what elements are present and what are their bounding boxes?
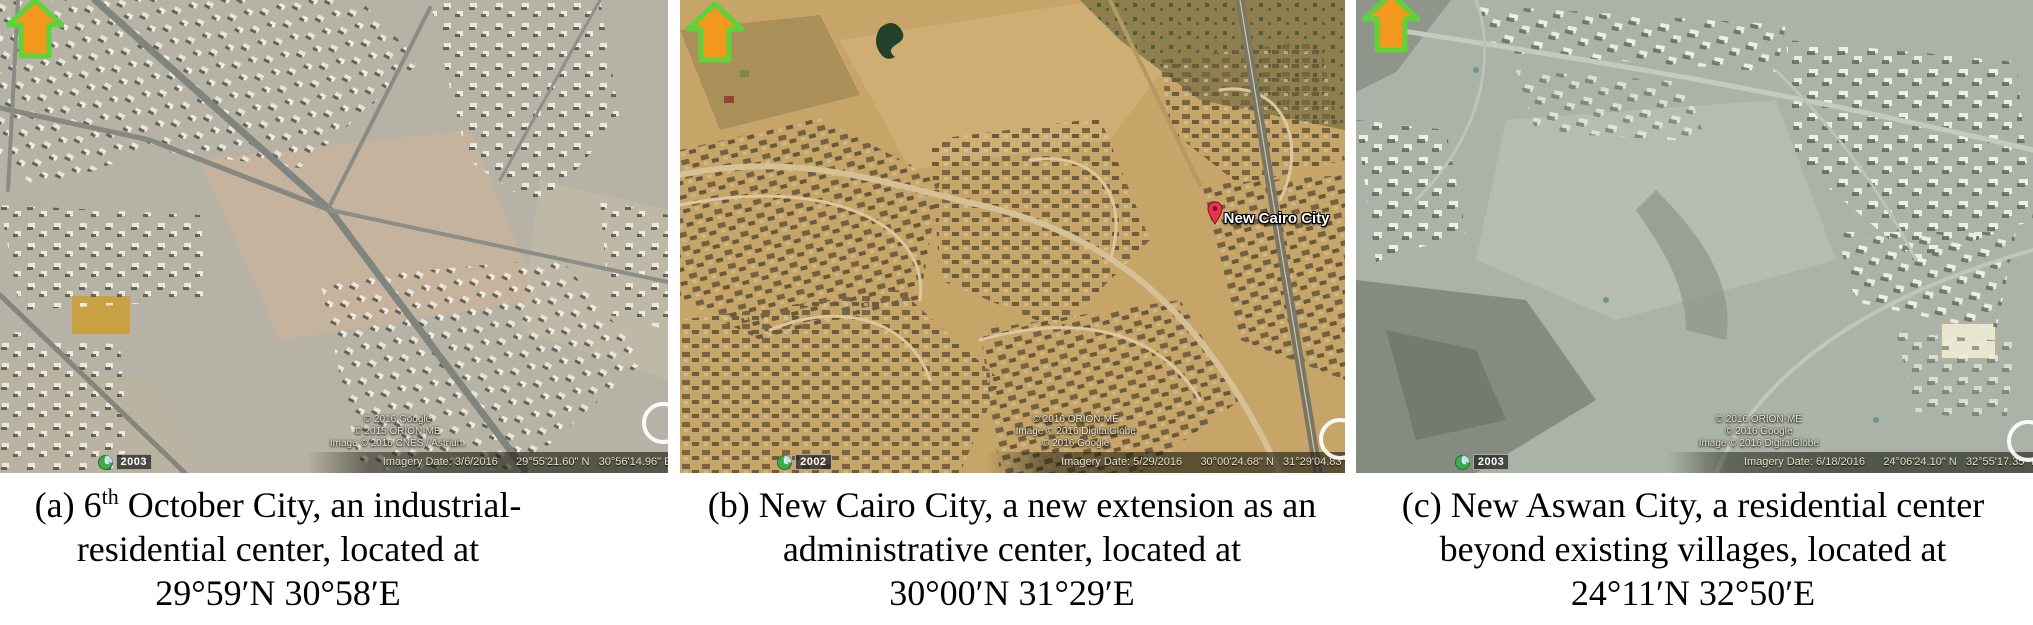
credit-line: © 2016 ORION-ME: [1699, 414, 1819, 426]
placemark-new-cairo-city: New Cairo City: [1207, 201, 1330, 227]
credit-line: © 2015 ORION-ME: [330, 426, 465, 438]
map-pin-icon: [1207, 201, 1223, 225]
credit-line: © 2016 Google: [330, 414, 465, 426]
year-label: 2003: [116, 454, 152, 470]
caption-a-coordinates: 29°59′N 30°58′E: [0, 571, 556, 615]
satellite-panel-october-city: © 2016 Google © 2015 ORION-ME Image © 20…: [0, 0, 668, 473]
status-text: Imagery Date: 3/6/2016 29°55'21.60" N 30…: [383, 456, 668, 468]
credit-line: © 2016 Google: [1016, 438, 1136, 450]
north-arrow-icon: [6, 0, 64, 59]
ordinal-superscript: th: [102, 484, 119, 509]
status-text: Imagery Date: 5/29/2016 30°00'24.68" N 3…: [1061, 456, 1345, 468]
caption-b-coordinates: 30°00′N 31°29′E: [662, 571, 1362, 615]
credit-line: © 2016 Google: [1699, 426, 1819, 438]
caption-a-line1: (a) 6th October City, an industrial-: [0, 483, 556, 527]
credit-line: © 2016 ORION-ME: [1016, 414, 1136, 426]
credit-line: Image © 2016 DigitalGlobe: [1699, 438, 1819, 450]
imagery-credits: © 2016 ORION-ME Image © 2016 DigitalGlob…: [1016, 414, 1136, 450]
credit-line: Image © 2016 DigitalGlobe: [1016, 426, 1136, 438]
status-text: Imagery Date: 6/18/2016 24°06'24.10" N 3…: [1744, 456, 2033, 468]
imagery-credits: © 2016 Google © 2015 ORION-ME Image © 20…: [330, 414, 465, 450]
historical-imagery-year-badge: 2003: [98, 454, 152, 470]
caption-c-coordinates: 24°11′N 32°50′E: [1353, 571, 2033, 615]
year-label: 2003: [1473, 454, 1509, 470]
satellite-panel-new-cairo: New Cairo City © 2016 ORION-ME Image © 2…: [680, 0, 1345, 473]
north-arrow-icon: [1362, 0, 1420, 53]
satellite-imagery-new-aswan: [1356, 0, 2033, 473]
caption-c: (c) New Aswan City, a residential center…: [1353, 483, 2033, 615]
satellite-imagery-october: [0, 0, 668, 473]
figure: © 2016 Google © 2015 ORION-ME Image © 20…: [0, 0, 2033, 625]
caption-a: (a) 6th October City, an industrial- res…: [0, 483, 556, 615]
caption-c-line1: (c) New Aswan City, a residential center: [1353, 483, 2033, 527]
imagery-credits: © 2016 ORION-ME © 2016 Google Image © 20…: [1699, 414, 1819, 450]
clock-globe-icon: [777, 455, 792, 470]
caption-b-line2: administrative center, located at: [662, 527, 1362, 571]
satellite-panel-new-aswan: © 2016 ORION-ME © 2016 Google Image © 20…: [1356, 0, 2033, 473]
historical-imagery-year-badge: 2002: [777, 454, 831, 470]
clock-globe-icon: [1455, 455, 1470, 470]
caption-b: (b) New Cairo City, a new extension as a…: [662, 483, 1362, 615]
placemark-label: New Cairo City: [1224, 210, 1330, 227]
caption-c-line2: beyond existing villages, located at: [1353, 527, 2033, 571]
clock-globe-icon: [98, 455, 113, 470]
year-label: 2002: [795, 454, 831, 470]
caption-b-line1: (b) New Cairo City, a new extension as a…: [662, 483, 1362, 527]
caption-row: (a) 6th October City, an industrial- res…: [0, 473, 2033, 625]
north-arrow-icon: [686, 1, 744, 63]
satellite-imagery-new-cairo: [680, 0, 1345, 473]
historical-imagery-year-badge: 2003: [1455, 454, 1509, 470]
credit-line: Image © 2016 CNES / Astrium: [330, 438, 465, 450]
caption-a-line2: residential center, located at: [0, 527, 556, 571]
